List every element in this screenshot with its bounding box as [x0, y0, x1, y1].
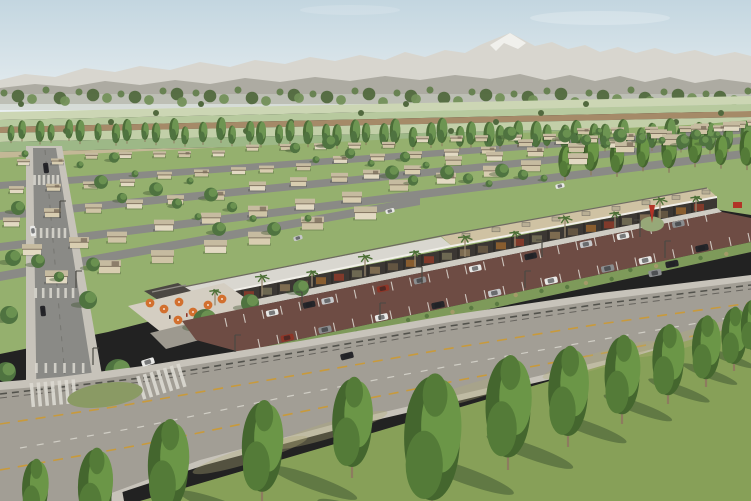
house-roof-edge [342, 196, 362, 197]
house-roof-edge [204, 246, 227, 247]
crosswalk-bar [64, 228, 67, 238]
palm-frond [695, 196, 696, 197]
house-wall [476, 138, 487, 141]
distant-tree [480, 89, 493, 102]
tree-crown-highlight [716, 132, 720, 136]
storefront-window [370, 267, 380, 274]
poplar-crown [467, 132, 473, 144]
crosswalk-bar [42, 288, 45, 298]
poplar-crown [303, 132, 310, 144]
house-wall [10, 189, 23, 193]
tree-crown-highlight [348, 149, 354, 155]
poplar-crown [362, 132, 367, 142]
umbrella-top [207, 304, 209, 306]
scene-svg [0, 0, 751, 501]
shrub [514, 293, 518, 297]
poplar-crown [662, 149, 672, 167]
palm-frond [311, 270, 312, 271]
tree-crown-highlight [543, 175, 547, 179]
house-wall [528, 151, 543, 156]
storefront-window [622, 218, 632, 225]
crosswalk-bar [49, 288, 52, 298]
house-dark-wing [112, 261, 119, 266]
house-wall [569, 147, 584, 152]
rooftop-unit [702, 190, 710, 194]
cloud [300, 5, 400, 15]
poplar-crown [286, 130, 292, 141]
distant-tree [586, 90, 593, 97]
tree-crown-highlight [598, 128, 602, 132]
tree-crown-highlight [307, 215, 311, 219]
poplar-crown-top [161, 419, 179, 450]
house-roof-edge [249, 185, 266, 186]
farm-tree [403, 101, 409, 107]
house-wall [364, 174, 379, 179]
distant-tree [628, 87, 635, 94]
storefront-window [316, 277, 326, 284]
house-roof [354, 206, 377, 213]
tree-crown-highlight [411, 176, 417, 182]
tree-crown-highlight [661, 137, 665, 141]
house-wall [232, 170, 245, 174]
farm-tree [198, 101, 204, 107]
distant-tree [160, 88, 167, 95]
house-wall [383, 145, 394, 148]
house-dark-wing [490, 148, 495, 151]
distant-tree [102, 93, 112, 103]
house-wall [154, 154, 165, 157]
tree-crown-highlight [694, 130, 700, 136]
house-dark-wing [315, 218, 322, 223]
shrub [539, 289, 543, 293]
poplar-crown [170, 129, 176, 140]
distant-tree [310, 91, 317, 98]
rooftop-unit [612, 206, 620, 210]
distant-tree [87, 89, 100, 102]
distant-tree [469, 89, 476, 96]
house-wall [297, 166, 310, 170]
tree-crown-highlight [57, 272, 63, 278]
house-roof-edge [126, 203, 143, 204]
distant-tree [219, 94, 229, 104]
distant-tree [411, 94, 421, 104]
house-wall [205, 246, 226, 253]
car-glass [44, 165, 48, 171]
house-wall [417, 139, 428, 142]
farm-tree [493, 119, 499, 125]
tree-crown-highlight [327, 136, 336, 145]
storefront-window [280, 284, 290, 291]
storefront-window [496, 242, 506, 249]
shrub [628, 268, 632, 272]
poplar-crown [112, 133, 117, 143]
crosswalk-bar [43, 175, 46, 185]
poplar-crown [715, 149, 723, 164]
distant-tree [43, 87, 50, 94]
distant-tree [294, 93, 304, 103]
distant-tree [204, 90, 217, 103]
tree-crown-highlight [85, 292, 96, 303]
poplar-crown-top [663, 324, 677, 348]
crosswalk-bar [73, 363, 76, 373]
rooftop-unit [672, 195, 680, 199]
shrub [654, 264, 658, 268]
storefront-window [442, 253, 452, 260]
umbrella-top [192, 311, 194, 313]
poplar-crown [637, 152, 645, 167]
tree-crown-highlight [521, 170, 527, 176]
tree-crown-highlight [488, 181, 492, 185]
crosswalk-bar [40, 228, 43, 238]
tree-crown-highlight [217, 223, 226, 232]
umbrella-top [177, 319, 179, 321]
farm-tree [718, 110, 724, 116]
poplar-crown [65, 129, 70, 139]
shrub [495, 302, 499, 306]
poplar-crown [246, 131, 252, 141]
distant-tree [1, 90, 8, 97]
rooftop-unit [522, 222, 530, 226]
tree-crown-highlight [112, 153, 118, 159]
distant-tree [661, 89, 668, 96]
house-roof [151, 250, 174, 257]
poplar-crown [19, 129, 24, 138]
tree-crown-highlight [584, 136, 590, 142]
crosswalk-bar [58, 228, 61, 238]
poplar-crown [390, 130, 397, 142]
tree-crown-highlight [702, 136, 708, 142]
farm-tree [358, 110, 364, 116]
distant-tree [261, 96, 271, 106]
tree-crown-highlight [252, 215, 256, 219]
tree-crown-highlight [189, 178, 193, 182]
house-roof-edge [120, 182, 135, 183]
house-roof-edge [22, 249, 42, 250]
tree-crown-highlight [639, 134, 645, 140]
storefront-window [262, 288, 272, 295]
house-roof-edge [259, 168, 274, 169]
distant-tree [321, 91, 334, 104]
distant-tree [27, 94, 37, 104]
house-wall [86, 208, 101, 213]
tree-crown-highlight [272, 223, 281, 232]
distant-tree [177, 97, 187, 107]
poplar-crown [437, 130, 444, 143]
house-roof-edge [231, 170, 246, 171]
house-wall [213, 153, 224, 156]
poplar-crown [182, 135, 187, 144]
distant-tree [277, 89, 284, 96]
distant-tree [703, 91, 710, 98]
house-wall [249, 238, 270, 245]
house-roof-edge [568, 147, 585, 148]
shrub [450, 310, 454, 314]
poplar-crown-top [423, 373, 448, 416]
tree-crown-highlight [618, 129, 627, 138]
house-roof [107, 232, 127, 238]
distant-tree [12, 90, 25, 103]
house-wall [23, 249, 41, 255]
house-roof-edge [486, 155, 503, 156]
distant-tree [438, 92, 451, 105]
poplar-crown [257, 132, 263, 144]
house-wall [18, 162, 29, 165]
farm-tree [18, 101, 24, 107]
house-roof-edge [747, 122, 751, 123]
house-roof-edge [201, 217, 221, 218]
poplar-crown [275, 134, 280, 143]
house-roof-edge [290, 181, 307, 182]
person [169, 315, 171, 319]
house-roof-edge [521, 165, 541, 166]
poplar-crown [142, 131, 147, 140]
car [30, 226, 36, 237]
crosswalk-bar [63, 363, 66, 373]
house-wall [405, 169, 420, 174]
palm-frond [414, 250, 415, 251]
tree-crown-highlight [134, 171, 138, 175]
storefront-window [676, 207, 686, 214]
distant-tree [129, 91, 142, 104]
house-wall [158, 175, 171, 179]
tree-crown-highlight [91, 258, 100, 267]
umbrella-top [221, 298, 223, 300]
tree-crown-highlight [230, 202, 236, 208]
tree-crown-highlight [315, 157, 319, 161]
poplar-crown [8, 133, 12, 141]
poplar-crown [36, 131, 42, 142]
house-roof-edge [416, 138, 429, 139]
house-wall [86, 155, 97, 158]
house-wall [569, 158, 587, 164]
distant-tree [555, 88, 568, 101]
house-roof-edge [3, 221, 20, 222]
house-wall [108, 237, 126, 243]
house-roof-edge [154, 224, 174, 225]
poplar-crown [406, 431, 443, 499]
poplar-crown [549, 387, 575, 435]
poplar-crown [333, 418, 359, 466]
house-wall [343, 197, 361, 203]
shrub [609, 277, 613, 281]
tree-crown-highlight [16, 202, 25, 211]
tree-crown-highlight [79, 162, 83, 166]
house-roof-edge [157, 174, 172, 175]
house-roof-edge [153, 154, 166, 155]
house-roof-edge [348, 145, 361, 146]
house-roof-edge [444, 152, 459, 153]
house-wall [4, 222, 19, 227]
house-wall [45, 212, 60, 217]
house-dark-wing [55, 185, 60, 188]
distant-tree [427, 87, 434, 94]
crosswalk-bar [47, 175, 50, 185]
house-wall [155, 225, 173, 231]
poplar-crown [123, 129, 129, 140]
house-dark-wing [218, 192, 223, 196]
monument-sign [733, 202, 742, 208]
rooftop-unit [642, 201, 650, 205]
farm-tree [108, 119, 114, 125]
shrub [584, 281, 588, 285]
house-roof [201, 213, 221, 219]
poplar-crown [350, 131, 357, 143]
house-wall [519, 142, 532, 146]
shrub [425, 314, 429, 318]
poplar-crown [693, 344, 712, 378]
crosswalk-bar [82, 363, 85, 373]
tree-crown-highlight [197, 214, 201, 218]
crosswalk-bar [52, 175, 55, 185]
house-dark-wing [59, 159, 63, 161]
tree-crown-highlight [10, 251, 20, 261]
house-wall [247, 147, 258, 150]
car [40, 306, 46, 317]
shrub [724, 252, 728, 256]
house-roof [204, 240, 227, 247]
tree-crown-highlight [445, 166, 454, 175]
distant-tree [76, 89, 83, 96]
rooftop-unit [492, 228, 500, 232]
poplar-crown [229, 134, 234, 143]
tree-crown-highlight [24, 151, 28, 155]
house-wall [724, 126, 739, 131]
house-roof [295, 199, 315, 205]
house-roof-edge [543, 136, 556, 137]
house-wall [390, 185, 408, 191]
palm-frond [214, 289, 215, 290]
poplar-crown [653, 356, 674, 394]
umbrella-top [163, 308, 165, 310]
crosswalk-bar [33, 175, 36, 185]
house-roof-edge [404, 169, 421, 170]
distant-tree [60, 96, 70, 106]
tree-crown-highlight [99, 176, 108, 185]
house-roof [154, 220, 174, 226]
house-wall [291, 181, 306, 186]
rooftop-unit [582, 212, 590, 216]
poplar-crown [689, 146, 698, 162]
farm-tree [583, 101, 589, 107]
crosswalk-bar [64, 288, 67, 298]
poplar-crown [606, 371, 629, 414]
distant-tree [352, 88, 359, 95]
tree-crown-highlight [403, 152, 409, 158]
house-wall [371, 157, 384, 161]
house-dark-wing [373, 171, 378, 175]
house-dark-wing [458, 136, 462, 138]
farm-tree [153, 110, 159, 116]
poplar-crown [559, 161, 568, 177]
house-wall [152, 256, 173, 263]
distant-tree [336, 95, 346, 105]
tree-crown-highlight [500, 164, 509, 173]
house-dark-wing [627, 142, 633, 146]
umbrella-top [178, 301, 180, 303]
house-wall [70, 242, 88, 248]
storefront-window [478, 246, 488, 253]
house-roof-edge [354, 212, 377, 213]
poplar-crown-top [616, 335, 632, 362]
tree-crown-highlight [3, 363, 15, 375]
tree-crown-highlight [293, 143, 299, 149]
crosswalk-bar [56, 175, 59, 185]
shrub [698, 256, 702, 260]
house-roof-edge [9, 189, 24, 190]
house-dark-wing [629, 134, 634, 137]
house-wall [680, 129, 691, 132]
storefront-window [532, 235, 542, 242]
distant-tree [511, 91, 518, 98]
distant-tree [193, 90, 200, 97]
poplar-crown [611, 155, 620, 172]
tree-crown-highlight [247, 295, 258, 306]
house-roof-edge [295, 203, 315, 204]
palm-frond [514, 231, 515, 232]
house-roof [521, 160, 541, 166]
distant-tree [235, 87, 242, 94]
tree-crown-highlight [209, 188, 218, 197]
poplar-crown-top [501, 355, 521, 390]
storefront-window [604, 221, 614, 228]
house-wall [616, 146, 634, 152]
house-dark-wing [54, 209, 59, 213]
distant-tree [246, 92, 259, 105]
house-roof-edge [650, 133, 667, 134]
crosswalk-bar [45, 363, 48, 373]
farm-tree [538, 110, 544, 116]
poplar-crown-top [255, 400, 273, 431]
crosswalk-bar [54, 363, 57, 373]
storefront-window [424, 256, 434, 263]
crosswalk-bar [46, 228, 49, 238]
poplar-crown [740, 147, 750, 165]
poplar-crown-top [31, 459, 43, 479]
house-roof-edge [445, 160, 462, 161]
poplar-crown-top [89, 448, 104, 475]
house-wall [121, 182, 134, 186]
palm-frond [614, 212, 615, 213]
house-roof-edge [518, 142, 533, 143]
poplar-crown [152, 132, 158, 142]
house-wall [250, 186, 265, 191]
crosswalk-bar [35, 363, 38, 373]
distant-tree [363, 88, 376, 101]
house-roof-edge [107, 236, 127, 237]
poplar-crown [409, 137, 415, 147]
house-dark-wing [186, 152, 190, 154]
house-wall [487, 156, 502, 161]
distant-tree [544, 88, 551, 95]
crosswalk-bar [57, 288, 60, 298]
house-roof-edge [475, 137, 488, 138]
house-dark-wing [81, 238, 87, 242]
poplar-crown-top [701, 315, 713, 337]
tree-crown-highlight [425, 162, 429, 166]
tree-crown-highlight [563, 129, 572, 138]
house-dark-wing [203, 170, 208, 173]
house-wall [260, 169, 273, 173]
poplar-crown [199, 132, 205, 142]
house-wall [446, 160, 461, 165]
house-wall [445, 152, 458, 156]
crosswalk-bar [72, 288, 75, 298]
tree-crown-highlight [298, 281, 308, 291]
house-wall [355, 212, 376, 219]
house-roof-edge [212, 153, 225, 154]
distant-tree [118, 91, 125, 98]
house-roof-edge [370, 156, 385, 157]
